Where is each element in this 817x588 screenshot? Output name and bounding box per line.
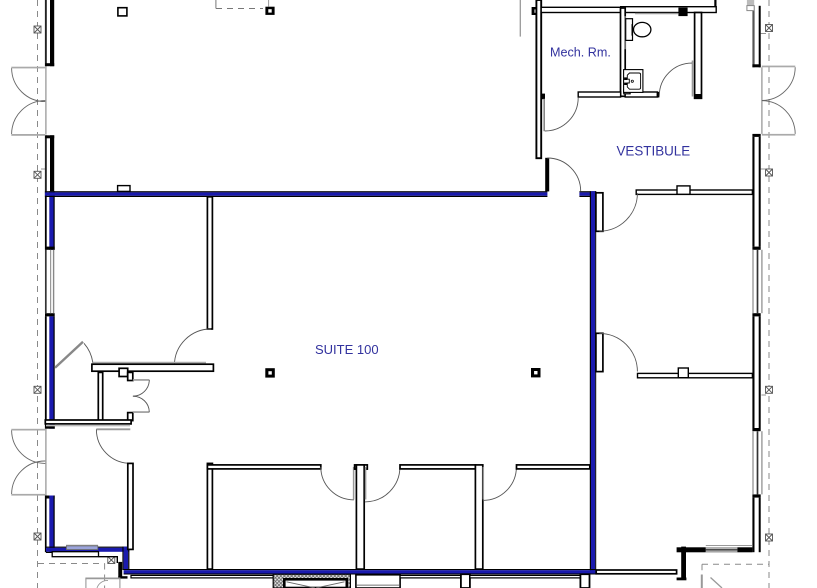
svg-text:SUITE 100: SUITE 100 <box>315 342 379 357</box>
svg-text:Mech. Rm.: Mech. Rm. <box>550 46 611 60</box>
svg-text:VESTIBULE: VESTIBULE <box>617 144 691 159</box>
